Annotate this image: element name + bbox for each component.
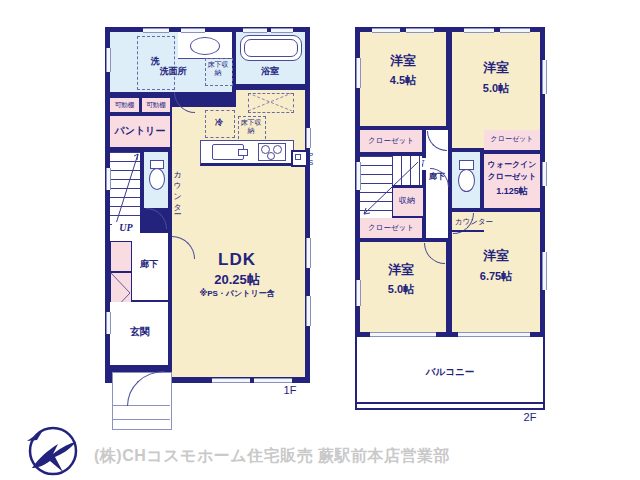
window <box>356 280 361 306</box>
stove-burner-3 <box>267 152 275 160</box>
hanging-cabinet-x <box>248 93 292 111</box>
bedroom-bl-label: 洋室 <box>373 262 429 278</box>
window <box>143 28 169 33</box>
stove-burner-2 <box>273 145 282 154</box>
balcony-rail-outer <box>355 402 545 404</box>
bedroom-tl-label: 洋室 <box>375 53 431 69</box>
company-name: (株)CHコスモホーム住宅販売 蕨駅前本店営業部 <box>94 446 554 467</box>
wic-label-2: クローゼット <box>484 172 540 182</box>
closet-tr-label: クローゼット <box>484 135 540 143</box>
closet-tl-label: クローゼット <box>360 136 422 145</box>
window <box>356 58 361 88</box>
underfloor-storage-2-label: 床下収納 <box>240 119 262 136</box>
bedroom-bl-size: 5.0帖 <box>373 283 429 296</box>
window <box>181 28 205 33</box>
bedroom-tr-size: 5.0帖 <box>468 82 524 95</box>
underfloor-storage-1-label: 床下収納 <box>207 61 229 78</box>
window <box>271 28 293 33</box>
hall-storage-upper <box>110 241 132 272</box>
window <box>306 296 311 326</box>
floor2-label: 2F <box>516 411 544 424</box>
movable-shelf-2-label: 可動棚 <box>142 101 170 109</box>
pantry-label: パントリー <box>112 125 168 137</box>
window <box>306 238 311 268</box>
porch-step-line-2 <box>112 419 170 420</box>
floor1-label: 1F <box>276 384 304 397</box>
toilet-1f-bowl-icon <box>149 168 165 190</box>
ps-shaft-inner <box>295 154 301 160</box>
kitchen-faucet-icon <box>238 149 248 156</box>
counter-2f-line <box>452 230 484 232</box>
window <box>542 162 547 186</box>
sink-icon <box>190 37 220 55</box>
bedroom-br-size: 6.75帖 <box>466 270 526 283</box>
bedroom-tr-label: 洋室 <box>468 60 524 76</box>
ldk-label: LDK <box>192 250 282 270</box>
window <box>406 28 434 33</box>
window <box>500 28 530 33</box>
counter-2f-label: カウンター <box>452 217 496 226</box>
toilet-2f-bowl-icon <box>458 169 475 192</box>
window <box>106 168 111 190</box>
fridge-label: 冷 <box>209 118 229 128</box>
window <box>464 28 494 33</box>
bird-logo-icon <box>22 424 86 478</box>
window <box>106 48 111 72</box>
ps-label: PS <box>306 148 314 170</box>
balcony-rail-inner <box>355 408 545 410</box>
sliding-door <box>370 332 436 337</box>
washroom-label: 洗面所 <box>143 66 203 77</box>
bathtub-inner <box>244 39 298 57</box>
sliding-door <box>458 332 530 337</box>
window <box>243 28 267 33</box>
entrance-label: 玄関 <box>122 326 158 338</box>
ldk-size-label: 20.25帖 <box>192 272 282 288</box>
bedroom-tl-size: 4.5帖 <box>375 74 431 87</box>
wic-size-label: 1.125帖 <box>484 186 540 197</box>
window <box>542 60 547 94</box>
floorplan-canvas: 洗 洗面所 浴室 床下収納 可動棚 可動棚 パントリー UP 廊下 玄関 冷 床… <box>0 0 640 480</box>
sliding-door <box>212 378 250 383</box>
window <box>356 162 361 190</box>
company-logo <box>22 424 86 478</box>
window <box>542 252 547 290</box>
bathroom-label: 浴室 <box>250 66 290 77</box>
sliding-door <box>254 378 292 383</box>
window <box>306 128 311 148</box>
bedroom-br-label: 洋室 <box>466 248 526 264</box>
wic-label-1: ウォークイン <box>484 160 540 170</box>
closet-bl-label: クローゼット <box>360 223 422 232</box>
balcony-label: バルコニー <box>415 366 485 377</box>
counter-1f-label: カウンター <box>172 140 182 236</box>
window <box>372 28 400 33</box>
hallway-1f-label: 廊下 <box>134 259 164 270</box>
stairs-1f-diagonal <box>110 152 140 233</box>
movable-shelf-1-label: 可動棚 <box>110 101 139 109</box>
ldk-note-label: ※PS・パントリー含 <box>180 289 294 299</box>
storage-2f-label: 収納 <box>392 196 422 206</box>
window <box>106 312 111 334</box>
